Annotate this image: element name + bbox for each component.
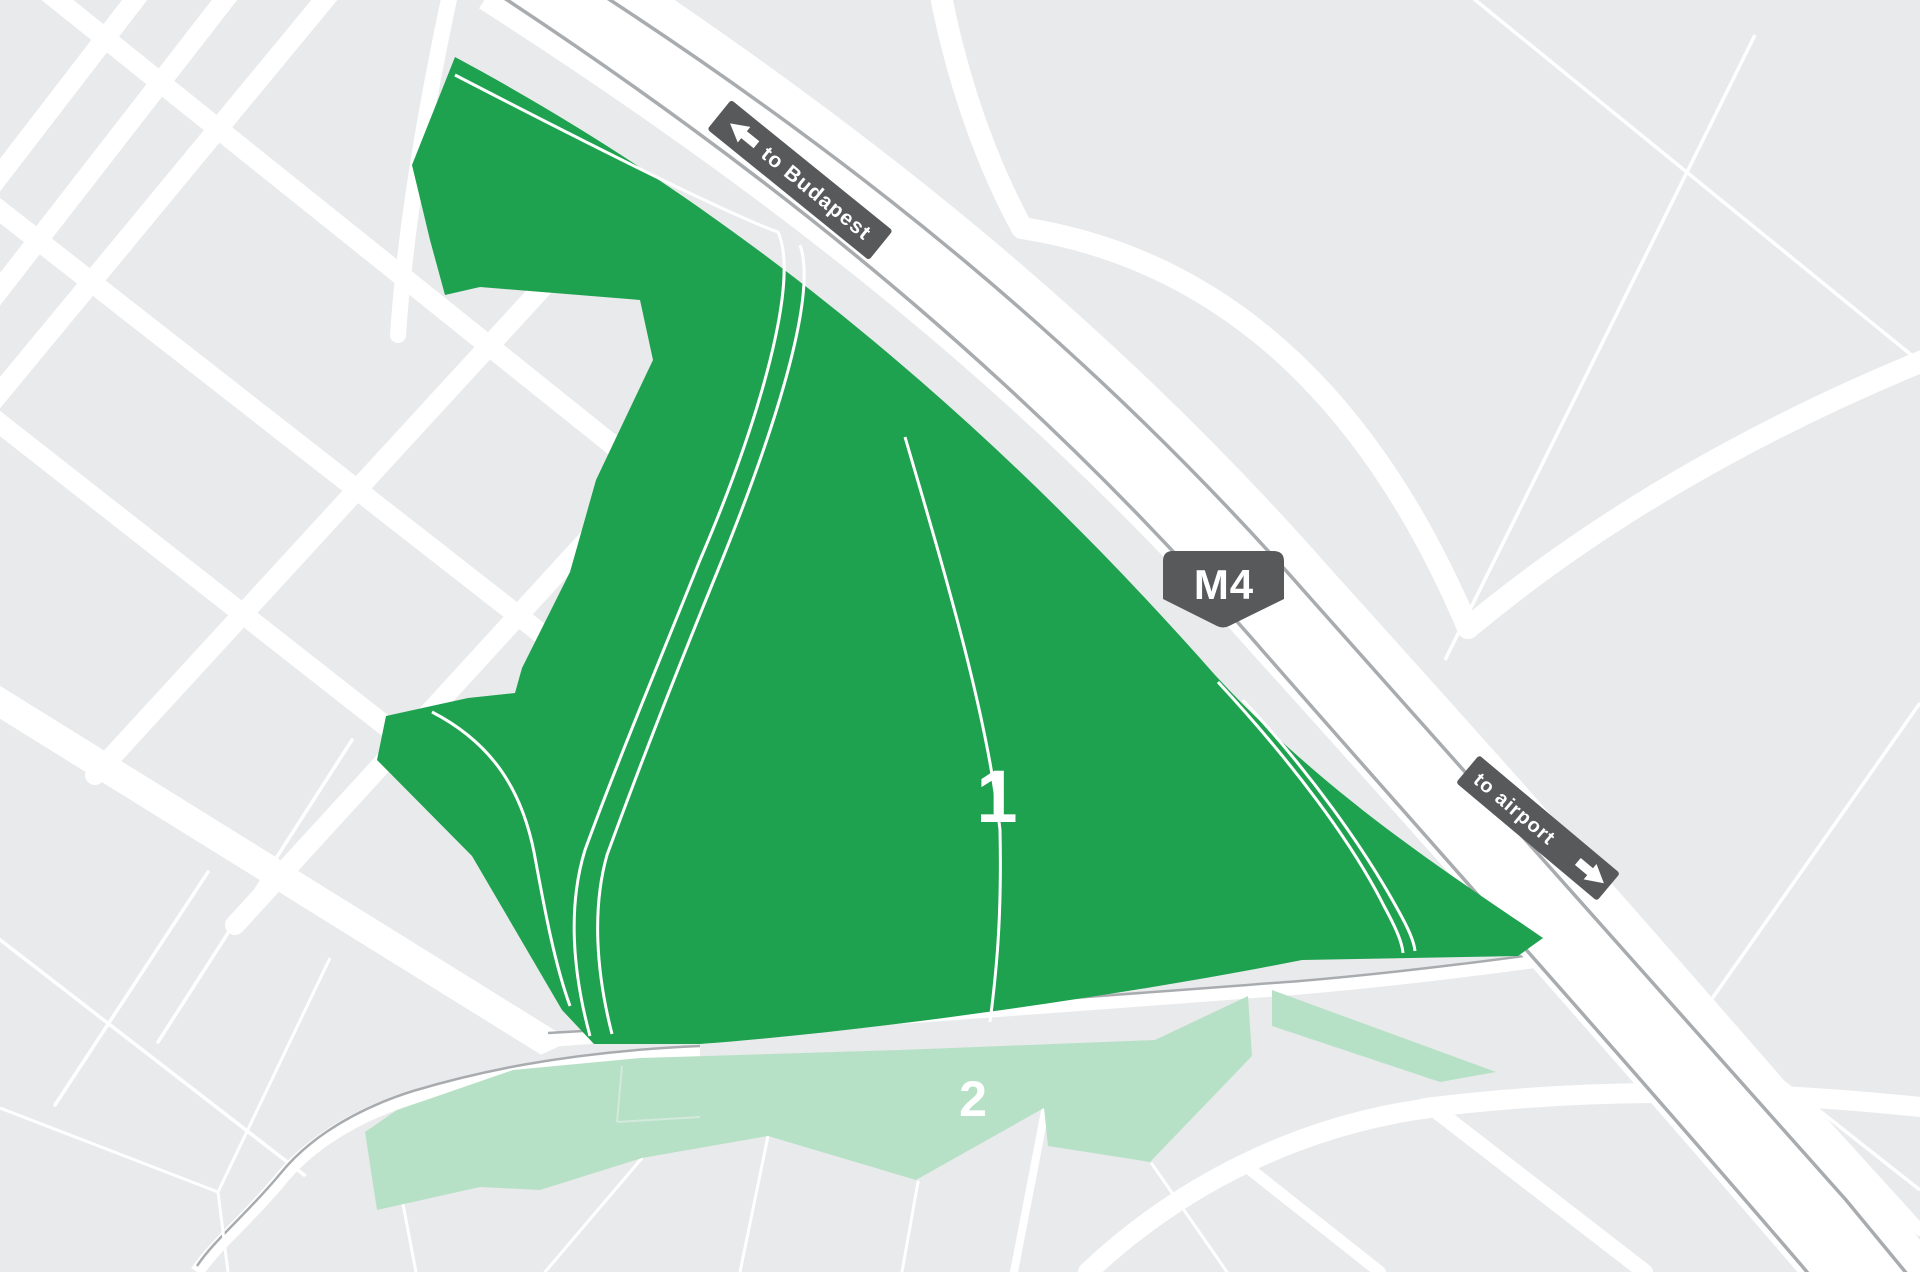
motorway-badge-label: M4 [1194, 561, 1254, 608]
site-map-canvas: 1 2 to Budapest to airport M4 [0, 0, 1920, 1272]
parcel-2-label: 2 [959, 1071, 987, 1127]
parcel-1-label: 1 [976, 755, 1017, 838]
